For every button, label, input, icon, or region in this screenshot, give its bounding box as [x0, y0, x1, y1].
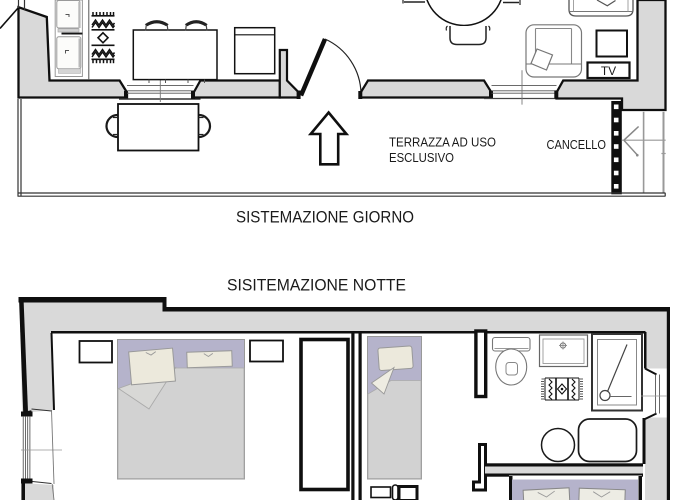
svg-text:TERRAZZA AD USO: TERRAZZA AD USO [389, 136, 496, 150]
svg-text:ESCLUSIVO: ESCLUSIVO [389, 151, 454, 165]
svg-text:SISITEMAZIONE NOTTE: SISITEMAZIONE NOTTE [227, 276, 406, 295]
svg-text:CANCELLO: CANCELLO [547, 137, 607, 152]
svg-text:TV: TV [601, 64, 616, 78]
svg-text:SISTEMAZIONE GIORNO: SISTEMAZIONE GIORNO [236, 208, 414, 227]
